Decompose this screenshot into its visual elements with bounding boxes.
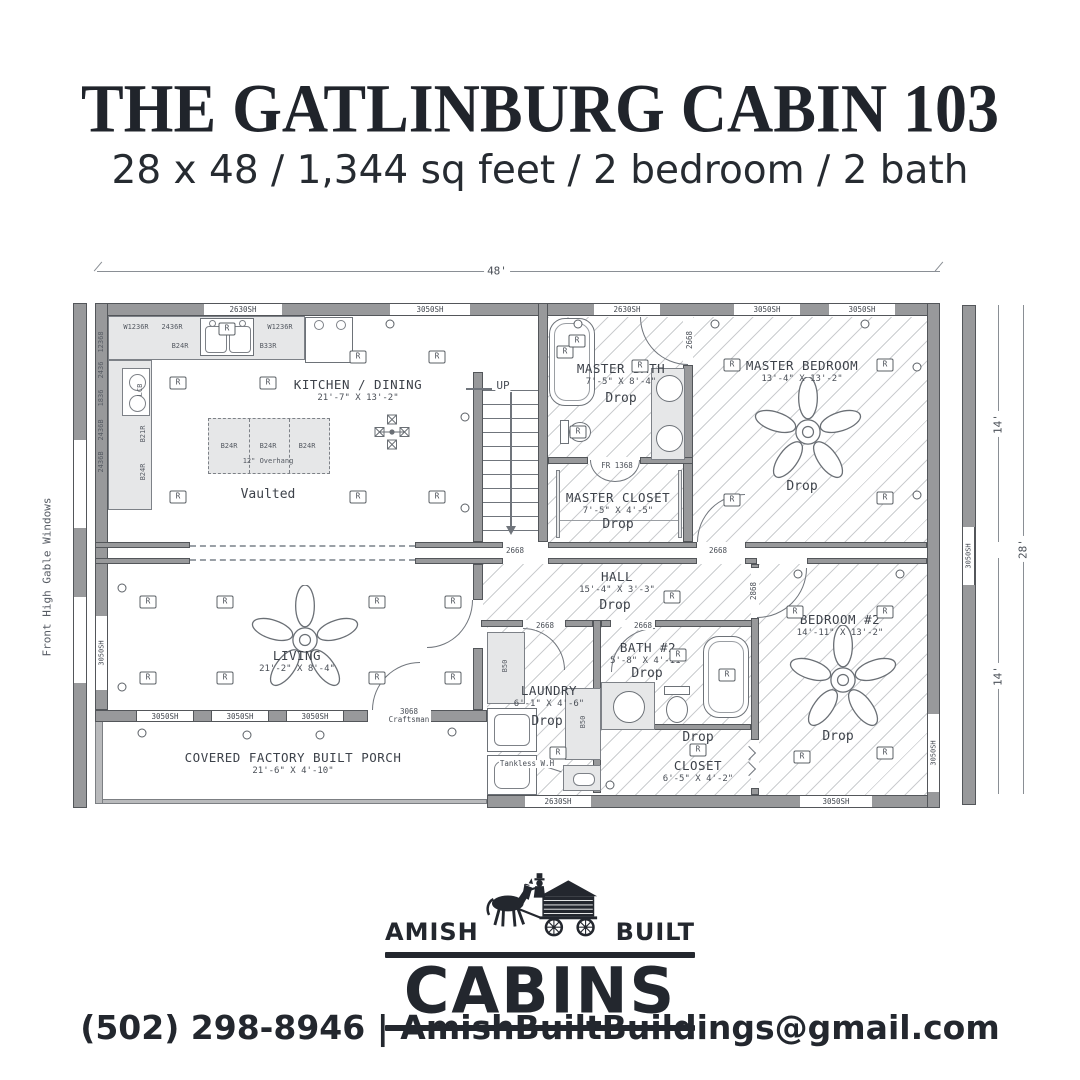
window: 3050SH	[137, 710, 193, 722]
cabinet-label: B24R	[260, 442, 277, 450]
rdims: 21'-6" X 4'-10"	[185, 766, 402, 776]
window-size-label: 3050SH	[416, 305, 443, 314]
gable-window	[73, 597, 87, 683]
plan-element	[613, 691, 645, 723]
window: 3050SH	[95, 616, 108, 690]
plan-element	[818, 406, 863, 437]
bedroom2-note: Drop	[822, 729, 853, 744]
master-bath-note: Drop	[605, 391, 636, 406]
wall	[548, 542, 697, 548]
door-size-label: FR 1368	[600, 462, 634, 470]
receptacle-icon: R	[719, 669, 736, 682]
window-size-label: 3050SH	[226, 712, 253, 721]
horse-wagon-icon	[479, 852, 616, 952]
page: THE GATLINBURG CABIN 103 28 x 48 / 1,344…	[0, 0, 1080, 1080]
bath2-note: Drop	[631, 666, 662, 681]
plan-element	[296, 585, 315, 627]
receptacle-icon: R	[140, 672, 157, 685]
plan-element	[494, 714, 530, 746]
window-size-label: 3050SH	[98, 640, 106, 665]
company-logo: AMISH	[385, 852, 695, 1031]
plan-element	[853, 654, 898, 685]
wall	[430, 710, 487, 722]
wall	[751, 618, 759, 740]
master-bedroom-note: Drop	[786, 479, 817, 494]
room-label-master-bath: MASTER BATH 7'-5" X 8'-4"	[577, 361, 665, 387]
plan-element	[546, 919, 562, 935]
ceiling-fan-icon	[753, 377, 863, 487]
receptacle-icon: R	[350, 351, 367, 364]
rname: COVERED FACTORY BUILT PORCH	[185, 750, 402, 765]
rname: LIVING	[259, 648, 335, 663]
cabinet-label: B50	[501, 660, 509, 673]
plan-element	[788, 654, 833, 685]
closet-rod	[678, 470, 682, 538]
wall-light-icon	[448, 728, 457, 737]
window-size-label: 3050SH	[822, 797, 849, 806]
rname: BEDROOM #2	[797, 612, 884, 627]
rdims: 21'-7" X 13'-2"	[294, 393, 422, 403]
plan-element	[503, 910, 504, 927]
door-size-label: 2668	[686, 330, 694, 350]
plan-element	[808, 437, 848, 482]
door-size-label: 2668	[505, 547, 525, 555]
wall	[473, 564, 483, 600]
window: 3050SH	[287, 710, 343, 722]
cabinet-label: 1836	[97, 390, 105, 407]
rdims: 7'-5" X 4'-5"	[566, 506, 670, 516]
cabinet-label: W1236R	[123, 323, 148, 331]
plan-element	[314, 320, 324, 330]
window-size-label: 3050SH	[753, 305, 780, 314]
window: 3050SH	[829, 303, 895, 316]
logo-word-amish: AMISH	[385, 918, 479, 952]
plan-element	[336, 320, 346, 330]
rname: MASTER BEDROOM	[746, 358, 858, 373]
wall-light-icon	[118, 584, 127, 593]
hall-note: Drop	[599, 598, 630, 613]
room-label-master-closet: MASTER CLOSET 7'-5" X 4'-5"	[566, 490, 670, 516]
laundry-note: Drop	[531, 714, 562, 729]
receptacle-icon: R	[787, 606, 804, 619]
window-size-label: 3050SH	[151, 712, 178, 721]
room-label-laundry: LAUNDRY 6'-1" X 4'-6"	[514, 683, 584, 709]
cabinet-label: 12" Overhang	[243, 457, 294, 465]
dimline	[97, 271, 940, 272]
cabinet-label: B24R	[172, 342, 189, 350]
window: 3050SH	[212, 710, 268, 722]
wall	[95, 710, 137, 722]
wall	[601, 620, 611, 627]
contact-email: AmishBuiltBuildings@gmail.com	[400, 1008, 999, 1047]
dim-right-upper: 14'	[992, 411, 1005, 437]
receptacle-icon: R	[724, 494, 741, 507]
rname: KITCHEN / DINING	[294, 377, 422, 392]
rname: MASTER BATH	[577, 361, 665, 376]
wall-light-icon	[316, 731, 325, 740]
plan-element	[803, 685, 843, 730]
plan-element	[843, 685, 883, 730]
wall	[655, 620, 757, 627]
dim-overall-width: 28'	[1017, 536, 1030, 562]
wall	[415, 558, 503, 564]
wall	[751, 788, 759, 795]
stairs-up-label: UP	[495, 380, 510, 392]
wall	[95, 542, 190, 548]
plan-element	[753, 406, 798, 437]
gable-window	[73, 440, 87, 528]
cabinet-label: B21R	[139, 426, 147, 443]
plan-element	[513, 910, 514, 927]
receptacle-icon: R	[445, 672, 462, 685]
bath2-toilet-bowl	[666, 696, 688, 723]
door-size-label: 2668	[535, 622, 555, 630]
rdims: 7'-5" X 8'-4"	[577, 377, 665, 387]
wall	[548, 558, 697, 564]
cabinet-label: B50	[579, 716, 587, 729]
master-closet-note: Drop	[602, 517, 633, 532]
cabinet-label: 2436	[97, 362, 105, 379]
contact-separator: |	[377, 1008, 389, 1047]
door-size-label: 2668	[708, 547, 728, 555]
cabinet-label: LCB	[136, 384, 144, 397]
window-size-label: 2630SH	[544, 797, 571, 806]
wall	[565, 620, 593, 627]
plan-element	[539, 880, 597, 896]
wall-light	[95, 710, 103, 804]
wall	[415, 542, 503, 548]
plan-element	[577, 919, 593, 935]
cabinet-label: 2436B	[97, 451, 105, 472]
room-label-closet2: CLOSET 6'-5" X 4'-2"	[663, 758, 733, 784]
rname: MASTER CLOSET	[566, 490, 670, 505]
wall	[343, 710, 368, 722]
logo-word-built: BUILT	[616, 918, 695, 952]
wall-light-icon	[138, 729, 147, 738]
wall-light-icon	[118, 683, 127, 692]
window: 3050SH	[734, 303, 800, 316]
window-size-label: 3050SH	[965, 543, 973, 568]
receptacle-icon: R	[877, 359, 894, 372]
wall-light-icon	[243, 731, 252, 740]
door-size-label: 3068 Craftsman	[387, 708, 431, 724]
window: 2630SH	[204, 303, 282, 316]
plan-element	[487, 873, 596, 935]
cabinet-label: B33R	[260, 342, 277, 350]
dim-overall-length: 48'	[484, 265, 510, 278]
receptacle-icon: R	[877, 747, 894, 760]
receptacle-icon: R	[217, 596, 234, 609]
wall-light-icon	[913, 363, 922, 372]
receptacle-icon: R	[140, 596, 157, 609]
plan-element	[495, 909, 499, 925]
kitchen-ceiling-note: Vaulted	[241, 487, 296, 502]
window-size-label: 3050SH	[301, 712, 328, 721]
plan-element	[768, 437, 808, 482]
plan-element	[536, 880, 542, 886]
window-size-label: 2630SH	[613, 305, 640, 314]
wall-light-icon	[574, 320, 583, 329]
plan-element	[315, 614, 360, 645]
plan-element	[239, 320, 246, 327]
receptacle-icon: R	[664, 591, 681, 604]
wall-light-icon	[896, 570, 905, 579]
plan-element	[250, 614, 295, 645]
gable-windows-note: Front High Gable Windows	[41, 498, 54, 657]
rname: LAUNDRY	[514, 683, 584, 698]
door-arc-porch	[372, 662, 420, 710]
plan-element	[129, 395, 146, 412]
receptacle-icon: R	[170, 491, 187, 504]
receptacle-icon: R	[369, 596, 386, 609]
wall	[807, 558, 927, 564]
wall	[481, 620, 523, 627]
contact-info: (502) 298-8946 | AmishBuiltBuildings@gma…	[0, 1008, 1080, 1047]
receptacle-icon: R	[217, 672, 234, 685]
rdims: 15'-4" X 3'-3"	[579, 585, 655, 595]
rdims: 14'-11" X 13'-2"	[797, 628, 884, 638]
cabinet-label: B24R	[299, 442, 316, 450]
window: 2630SH	[594, 303, 660, 316]
logo-row: AMISH	[385, 852, 695, 952]
wall	[268, 710, 287, 722]
receptacle-icon: R	[877, 606, 894, 619]
window: 2630SH	[525, 795, 591, 808]
plan-element	[584, 925, 588, 929]
wall-light	[95, 799, 487, 804]
rname: CLOSET	[663, 758, 733, 773]
receptacle-icon: R	[219, 323, 236, 336]
cabinet-label: W1236R	[267, 323, 292, 331]
rdims: 21'-2" X 8'-4"	[259, 664, 335, 674]
cabinet-label: B24R	[221, 442, 238, 450]
ceiling-fan-icon	[788, 625, 898, 735]
rdims: 6'-5" X 4'-2"	[663, 774, 733, 784]
cabinet-label: 2436R	[161, 323, 182, 331]
receptacle-icon: R	[570, 426, 587, 439]
plan-element	[831, 668, 855, 692]
closet-rod	[556, 470, 560, 538]
dimline	[94, 262, 102, 272]
plan-element	[519, 909, 541, 918]
receptacle-icon: R	[670, 649, 687, 662]
receptacle-icon: R	[724, 359, 741, 372]
cabinet-label: 2436B	[97, 419, 105, 440]
bath2-vanity	[601, 682, 655, 730]
plan-element	[528, 878, 532, 884]
receptacle-icon: R	[445, 596, 462, 609]
bath2-toilet-tank	[664, 686, 690, 695]
window-size-label: 3050SH	[848, 305, 875, 314]
wall-light-icon	[913, 491, 922, 500]
wall-light-icon	[711, 320, 720, 329]
wall	[95, 558, 190, 564]
receptacle-icon: R	[690, 744, 707, 757]
wall	[538, 303, 548, 542]
room-label-living: LIVING 21'-2" X 8'-4"	[259, 648, 335, 674]
door-size-label: Tankless W.H	[499, 760, 555, 768]
dining-light-icon	[374, 414, 410, 450]
receptacle-icon: R	[429, 351, 446, 364]
wall	[473, 648, 483, 710]
wall-light-icon	[861, 320, 870, 329]
room-label-porch: COVERED FACTORY BUILT PORCH 21'-6" X 4'-…	[185, 750, 402, 776]
receptacle-icon: R	[170, 377, 187, 390]
tankless-water-heater	[563, 765, 601, 791]
dashjoint	[190, 545, 415, 547]
refrigerator	[305, 317, 353, 363]
cabinet-label: B24R	[139, 464, 147, 481]
rdims: 6'-1" X 4'-6"	[514, 699, 584, 709]
window: 3050SH	[962, 527, 975, 585]
plan-element	[552, 925, 556, 929]
plan-element	[656, 425, 683, 452]
room-label-bedroom2: BEDROOM #2 14'-11" X 13'-2"	[797, 612, 884, 638]
room-label-kitchen: KITCHEN / DINING 21'-7" X 13'-2"	[294, 377, 422, 403]
receptacle-icon: R	[632, 360, 649, 373]
window: 3050SH	[800, 795, 872, 808]
receptacle-icon: R	[550, 747, 567, 760]
window-size-label: 3050SH	[930, 740, 938, 765]
rname: HALL	[579, 569, 655, 584]
receptacle-icon: R	[350, 491, 367, 504]
dashjoint	[190, 559, 415, 561]
plan-element	[534, 878, 544, 880]
rdims: 13'-4" X 13'-2"	[746, 374, 858, 384]
plan-element	[796, 420, 820, 444]
receptacle-icon: R	[369, 672, 386, 685]
dim-right-lower: 14'	[992, 663, 1005, 689]
stair-treads	[483, 390, 538, 542]
wall	[745, 542, 927, 548]
washer	[487, 708, 537, 752]
plan-element	[573, 773, 595, 786]
wall	[548, 457, 588, 464]
receptacle-icon: R	[794, 751, 811, 764]
room-label-hall: HALL 15'-4" X 3'-3"	[579, 569, 655, 595]
wall	[193, 710, 212, 722]
receptacle-icon: R	[877, 492, 894, 505]
door-size-label: 2668	[633, 622, 653, 630]
receptacle-icon: R	[260, 377, 277, 390]
wall	[73, 303, 87, 808]
wall-light-icon	[461, 413, 470, 422]
wall-light-icon	[386, 320, 395, 329]
wall	[473, 372, 483, 542]
door-size-label: 2868	[750, 581, 758, 601]
window: 3050SH	[390, 303, 470, 316]
receptacle-icon: R	[569, 335, 586, 348]
plan-element	[209, 320, 216, 327]
master-toilet	[560, 420, 569, 444]
receptacle-icon: R	[429, 491, 446, 504]
stair-direction-arrow	[506, 526, 516, 535]
plan-element	[536, 873, 542, 878]
room-label-master-bedroom: MASTER BEDROOM 13'-4" X 13'-2"	[746, 358, 858, 384]
dimline	[935, 262, 943, 272]
contact-phone: (502) 298-8946	[80, 1008, 365, 1047]
wall-light-icon	[794, 570, 803, 579]
window-size-label: 2630SH	[229, 305, 256, 314]
plan-element	[389, 429, 394, 434]
wall-light-icon	[461, 504, 470, 513]
cabinet-label: 12368	[97, 331, 105, 352]
wall-light-icon	[606, 781, 615, 790]
window: 3050SH	[927, 714, 940, 792]
ceiling-fan-icon	[250, 585, 360, 695]
